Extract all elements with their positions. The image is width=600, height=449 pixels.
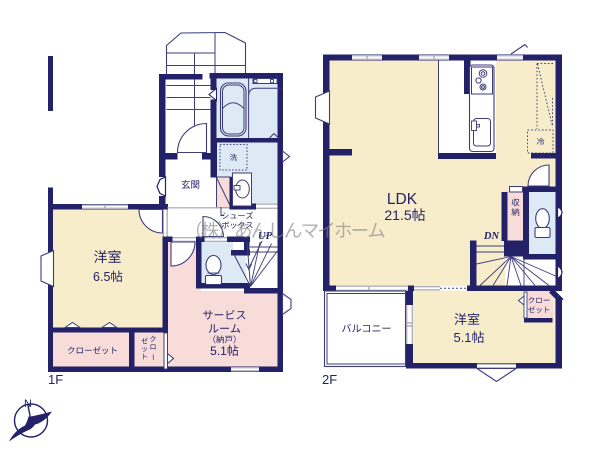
svg-text:5: 5	[453, 330, 460, 345]
svg-text:6: 6	[93, 270, 100, 284]
svg-text:DN: DN	[483, 231, 500, 242]
svg-text:5: 5	[404, 207, 412, 223]
svg-text:2F: 2F	[322, 372, 337, 387]
svg-text:1F: 1F	[48, 372, 63, 387]
svg-text:5: 5	[103, 270, 110, 284]
svg-text:LDK: LDK	[387, 191, 418, 208]
svg-text:1: 1	[464, 330, 471, 345]
svg-text:1: 1	[220, 344, 227, 358]
